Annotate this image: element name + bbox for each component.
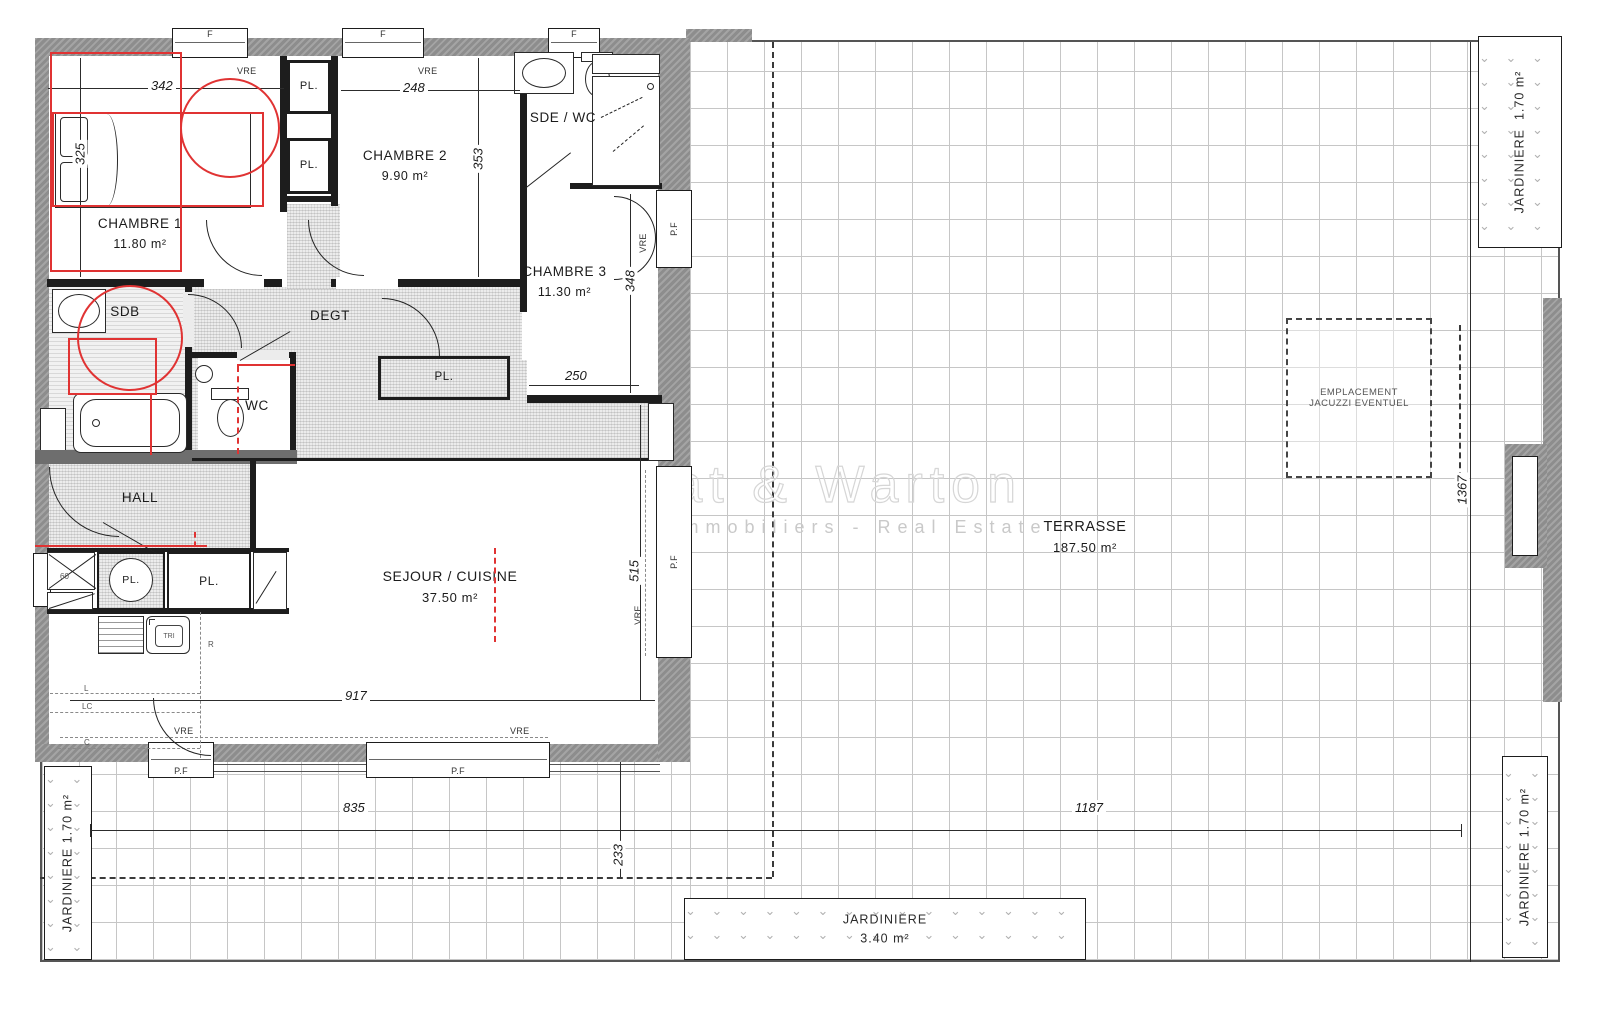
closet-pl-corridor-label: PL. [434,369,453,387]
dim-line-515 [640,405,641,700]
jardiniere-bottom-left: ⌄ ⌄ ⌄ ⌄ ⌄ ⌄ ⌄ ⌄ ⌄ ⌄ ⌄ ⌄ ⌄ ⌄ ⌄ ⌄ JARDINIE… [44,766,92,960]
door-opening-ch1 [204,277,264,289]
vre-label-ch2: VRE [418,66,437,76]
wall-corridor-bottom [192,458,662,461]
kitchen-dash-1 [50,693,200,694]
wall-pl-bottom [287,196,338,202]
vre-dash-bottom [60,737,548,738]
kitchen-shelf [253,552,287,610]
jardiniere-bottom-center-label: JARDINIERE 3.40 m² [843,910,927,948]
dim-label-353: 353 [456,150,500,168]
vre-label-ch1: VRE [237,66,256,76]
kitchen-shelf-diagonal [256,571,277,604]
closet-pl1-label: PL. [300,78,318,95]
degt-label: DEGT [290,306,370,327]
window-ch3-terrace: P.F [656,190,692,268]
water-heater: PL. [109,558,153,602]
closet-pl-corridor: PL. [378,356,510,400]
shower-head [647,83,654,90]
shelf-right-wall [648,403,674,461]
dim-label-348: 348 [608,272,652,290]
dim-line-250 [529,385,639,386]
right-recess-window [1512,456,1538,556]
fridge-diagonal [49,593,95,609]
window-ch3-pf-label: P.F [669,222,679,236]
appliance-l-label: L [84,684,88,693]
sink-drainer [98,616,144,654]
door-opening-wc [237,350,289,360]
sejour-label: SEJOUR / CUISINE37.50 m² [360,566,540,608]
annotation-rect-sdb [68,338,157,395]
jardiniere-bottom-left-label: JARDINIERE 1.70 m² [59,794,78,932]
wall-wc-right [290,352,296,450]
window-pf2-label: P.F [367,766,549,776]
annotation-dash-kitchen [194,532,196,547]
jardiniere-bottom-right-label: JARDINIERE 1.70 m² [1516,788,1535,926]
dim-label-248: 248 [400,80,428,95]
jardiniere-bottom-right: ⌄ ⌄ ⌄ ⌄ ⌄ ⌄ ⌄ ⌄ ⌄ ⌄ ⌄ ⌄ ⌄ ⌄ ⌄ ⌄ JARDINIE… [1502,756,1548,958]
annotation-line-wc-top [237,364,295,366]
wall-left [35,38,49,762]
water-heater-label: PL. [122,572,140,588]
wall-bottom [35,744,660,762]
window-sejour-terrace: P.F [656,466,692,658]
terrace-grid-bottom [42,762,690,960]
wc-handbasin [195,365,213,383]
jardiniere-top-right: ⌄ ⌄ ⌄ ⌄ ⌄ ⌄ ⌄ ⌄ ⌄ ⌄ ⌄ ⌄ ⌄ ⌄ ⌄ ⌄ ⌄ ⌄ ⌄ ⌄ … [1478,36,1562,248]
wc-label: WC [234,396,280,417]
hall-label: HALL [105,488,175,509]
dim-label-917: 917 [342,688,370,703]
shower [592,76,660,186]
dim-line-1367 [1470,42,1471,962]
closet-pl2-label: PL. [300,157,318,174]
annotation-line-bathtub [150,395,152,455]
jacuzzi-label-line1: EMPLACEMENT [1309,387,1409,398]
annotation-dash-wc [237,366,239,454]
boundary-top [690,40,1558,42]
jardiniere-bottom-center: ⌄ ⌄ ⌄ ⌄ ⌄ ⌄ ⌄ ⌄ ⌄ ⌄ ⌄ ⌄ ⌄ ⌄ ⌄ ⌄ ⌄ ⌄ ⌄ ⌄ … [684,898,1086,960]
dim-line-248 [341,90,520,91]
door-opening-ch2 [336,277,398,289]
dim-tick-right [1461,824,1462,837]
vre-label-bottom-2: VRE [508,726,531,736]
dashed-line-horizontal [40,877,772,879]
vre-label-ch3: VRE [634,228,652,258]
window-pf1-label: P.F [149,766,213,776]
boundary-right-lower [1558,700,1560,962]
vre-label-bottom-1: VRE [172,726,195,736]
sde-washbasin [522,58,566,88]
jardiniere-top-right-label: JARDINIERE 1.70 m² [1511,71,1530,214]
dim-label-250: 250 [562,368,590,383]
annotation-circle-chambre1 [180,78,280,178]
wall-ch3-bottom [527,395,662,403]
shower-stream-2 [613,125,644,151]
dim-label-233: 233 [596,846,640,864]
wall-ch1-right [280,56,287,212]
sde-wc-label: SDE / WC [498,108,628,129]
sink-tap [149,619,155,625]
kitchen-sink: TRI [146,616,190,654]
floorplan-canvas: 1367 EMPLACEMENT JACUZZI EVENTUEL TERRAS… [0,0,1600,1017]
jacuzzi-label-line2: JACUZZI EVENTUEL [1309,398,1409,409]
closet-pl1: PL. [287,60,331,114]
kitchen-closet-pl: PL. [167,552,251,610]
terrace-post [686,29,752,42]
dashed-line-right [1459,325,1461,478]
window-f3-label: F [549,29,599,39]
washing-machine [47,552,95,590]
window-f2-label: F [343,29,423,39]
window-pf2: P.F [366,742,550,778]
shower-shelf [592,54,660,74]
appliance-lc-label: LC [82,702,92,711]
dim-label-1367: 1367 [1432,480,1492,500]
window-f2: F [342,28,424,58]
appliance-c-label: C [84,738,90,747]
corridor-floor-b [527,403,662,458]
annotation-line-kitchen [35,545,207,547]
dim-label-835: 835 [340,800,368,815]
sink-tri-label: TRI [163,633,174,640]
annotation-dash-sejour [494,548,496,642]
jacuzzi-area: EMPLACEMENT JACUZZI EVENTUEL [1286,318,1432,478]
kitchen-dash-3 [58,748,200,749]
window-f1-label: F [173,29,247,39]
closet-pl2: PL. [287,138,331,194]
bathtub-drain [92,419,100,427]
niche-sdb [40,408,66,454]
sink-tri-box: TRI [155,625,183,647]
fridge [47,592,93,610]
boundary-left-lower [40,762,42,962]
dim-label-515: 515 [612,562,656,580]
vre-label-right: VRE [628,600,648,630]
washing-machine-size-label: 60 [60,572,69,581]
terrasse-area: 187.50 m² [1000,538,1170,558]
dim-label-1187: 1187 [1072,800,1106,815]
dim-tick-left [90,824,91,837]
dim-line-bottom [90,830,1462,831]
window-sejour-pf-label: P.F [669,555,679,569]
kitchen-closet-label: PL. [199,572,219,591]
boundary-bottom [40,960,1560,962]
window-f1: F [172,28,248,58]
wall-hall-right [250,461,256,551]
appliance-r-label: R [208,640,214,649]
